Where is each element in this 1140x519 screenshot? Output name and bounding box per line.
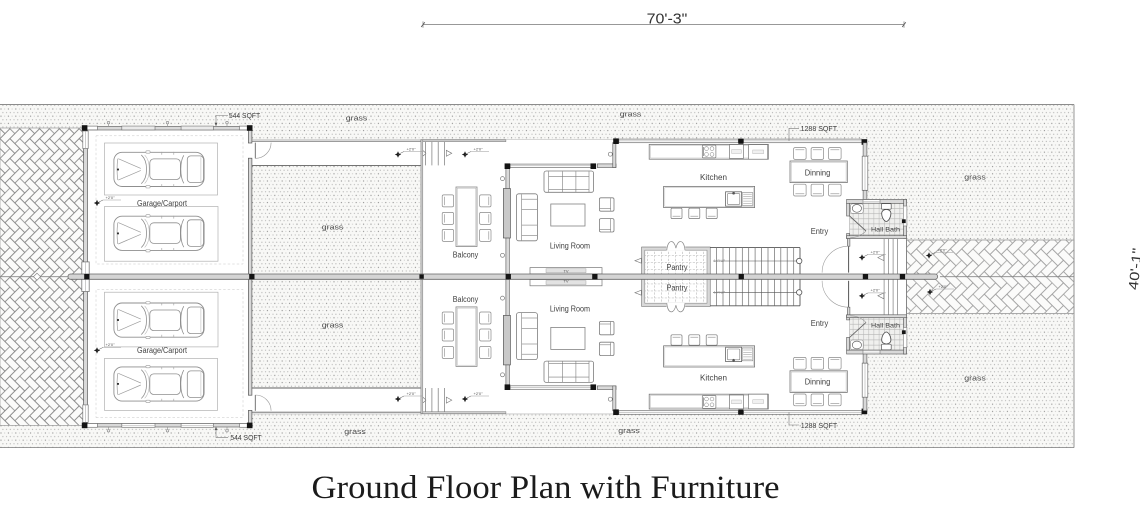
svg-text:Hall Bath: Hall Bath: [871, 226, 900, 233]
svg-text:70'-3": 70'-3": [647, 12, 688, 28]
svg-text:grass: grass: [964, 376, 986, 383]
svg-text:Pantry: Pantry: [667, 283, 688, 292]
svg-text:Ground Floor Plan with Furnitu: Ground Floor Plan with Furniture: [312, 470, 780, 506]
svg-text:+2'0": +2'0": [474, 146, 484, 151]
svg-text:Hall Bath: Hall Bath: [871, 322, 900, 329]
svg-text:grass: grass: [346, 115, 368, 122]
svg-text:14R UP: 14R UP: [714, 291, 725, 295]
svg-text:grass: grass: [618, 428, 640, 435]
svg-text:+2'0": +2'0": [871, 288, 881, 293]
svg-text:Living Room: Living Room: [550, 304, 590, 314]
svg-text:grass: grass: [620, 111, 642, 118]
svg-text:+2'0": +2'0": [106, 342, 116, 347]
svg-text:14R UP: 14R UP: [714, 259, 725, 263]
svg-text:Dinning: Dinning: [805, 168, 831, 178]
svg-text:Kitchen: Kitchen: [700, 373, 727, 383]
svg-text:+2'0": +2'0": [407, 391, 417, 396]
svg-text:+2'0": +2'0": [871, 249, 881, 254]
svg-text:Balcony: Balcony: [453, 251, 479, 260]
svg-text:1288 SQFT: 1288 SQFT: [801, 423, 838, 430]
svg-text:grass: grass: [964, 175, 986, 182]
svg-text:544 SQFT: 544 SQFT: [229, 113, 261, 120]
svg-text:544 SQFT: 544 SQFT: [230, 435, 262, 442]
svg-text:+2'0": +2'0": [407, 146, 417, 151]
svg-text:+2'0": +2'0": [474, 391, 484, 396]
svg-text:+2'0": +2'0": [939, 284, 949, 289]
svg-text:1288 SQFT: 1288 SQFT: [801, 126, 838, 133]
svg-text:+2'0": +2'0": [938, 247, 948, 252]
svg-text:Balcony: Balcony: [453, 295, 479, 304]
svg-text:Kitchen: Kitchen: [700, 172, 727, 182]
svg-text:+2'0": +2'0": [106, 195, 116, 200]
svg-text:Entry: Entry: [811, 226, 829, 236]
svg-text:Living Room: Living Room: [550, 241, 590, 251]
svg-text:TV: TV: [563, 278, 568, 283]
svg-text:Entry: Entry: [811, 318, 829, 328]
svg-text:Pantry: Pantry: [667, 263, 688, 272]
svg-text:Garage/Carport: Garage/Carport: [137, 199, 188, 208]
svg-text:TV: TV: [563, 269, 568, 274]
svg-text:grass: grass: [322, 225, 344, 232]
svg-text:Garage/Carport: Garage/Carport: [137, 346, 188, 355]
svg-text:grass: grass: [344, 429, 366, 436]
svg-text:grass: grass: [322, 323, 344, 330]
svg-text:Dinning: Dinning: [805, 377, 831, 387]
